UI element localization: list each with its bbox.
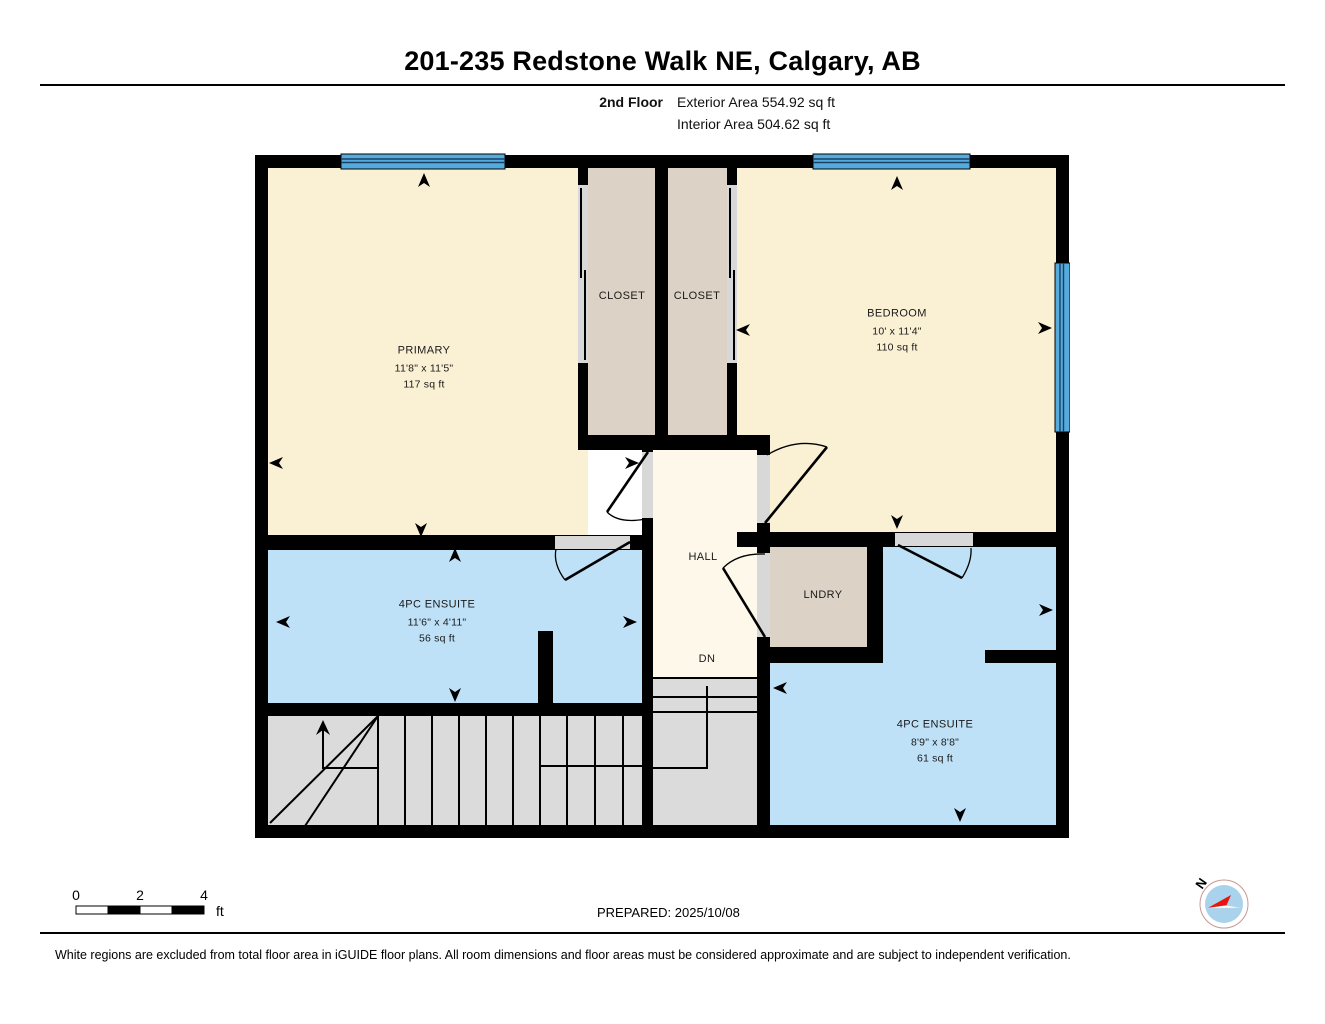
exterior-area-text: Exterior Area 554.92 sq ft xyxy=(677,94,835,110)
disclaimer-text: White regions are excluded from total fl… xyxy=(55,948,1071,962)
prepared-date: PREPARED: 2025/10/08 xyxy=(597,905,740,920)
window-primary-north xyxy=(341,154,505,169)
window-bedroom-north xyxy=(813,154,970,169)
room-label-closet-1: CLOSET xyxy=(599,288,645,306)
compass-icon: N xyxy=(1190,868,1256,939)
scale-tick-4: 4 xyxy=(200,887,208,903)
scale-bar: 0 2 4 ft xyxy=(68,886,243,931)
floorplan-page: { "header": { "title": "201-235 Redstone… xyxy=(0,0,1325,1024)
window-bedroom-east xyxy=(1055,263,1070,432)
room-label-bedroom: BEDROOM 10' x 11'4" 110 sq ft xyxy=(867,305,927,356)
header-divider xyxy=(40,84,1285,86)
room-label-primary: PRIMARY 11'8" x 11'5" 117 sq ft xyxy=(395,342,454,393)
floorplan: PRIMARY 11'8" x 11'5" 117 sq ft CLOSET C… xyxy=(255,150,1070,840)
room-label-closet-2: CLOSET xyxy=(674,288,720,306)
scale-bar-segments xyxy=(76,906,204,914)
room-label-ensuite-left: 4PC ENSUITE 11'6" x 4'11" 56 sq ft xyxy=(399,596,476,647)
room-label-hall: HALL xyxy=(688,549,717,567)
scale-tick-2: 2 xyxy=(136,887,144,903)
scale-unit-label: ft xyxy=(216,903,224,919)
room-label-laundry: LNDRY xyxy=(803,587,842,605)
scale-tick-0: 0 xyxy=(72,887,80,903)
page-title: 201-235 Redstone Walk NE, Calgary, AB xyxy=(0,46,1325,77)
room-label-stairs-down: DN xyxy=(699,651,716,669)
interior-area-text: Interior Area 504.62 sq ft xyxy=(677,116,830,132)
floor-label: 2nd Floor xyxy=(560,94,663,110)
footer-divider xyxy=(40,932,1285,934)
room-label-ensuite-right: 4PC ENSUITE 8'9" x 8'8" 61 sq ft xyxy=(897,716,974,767)
